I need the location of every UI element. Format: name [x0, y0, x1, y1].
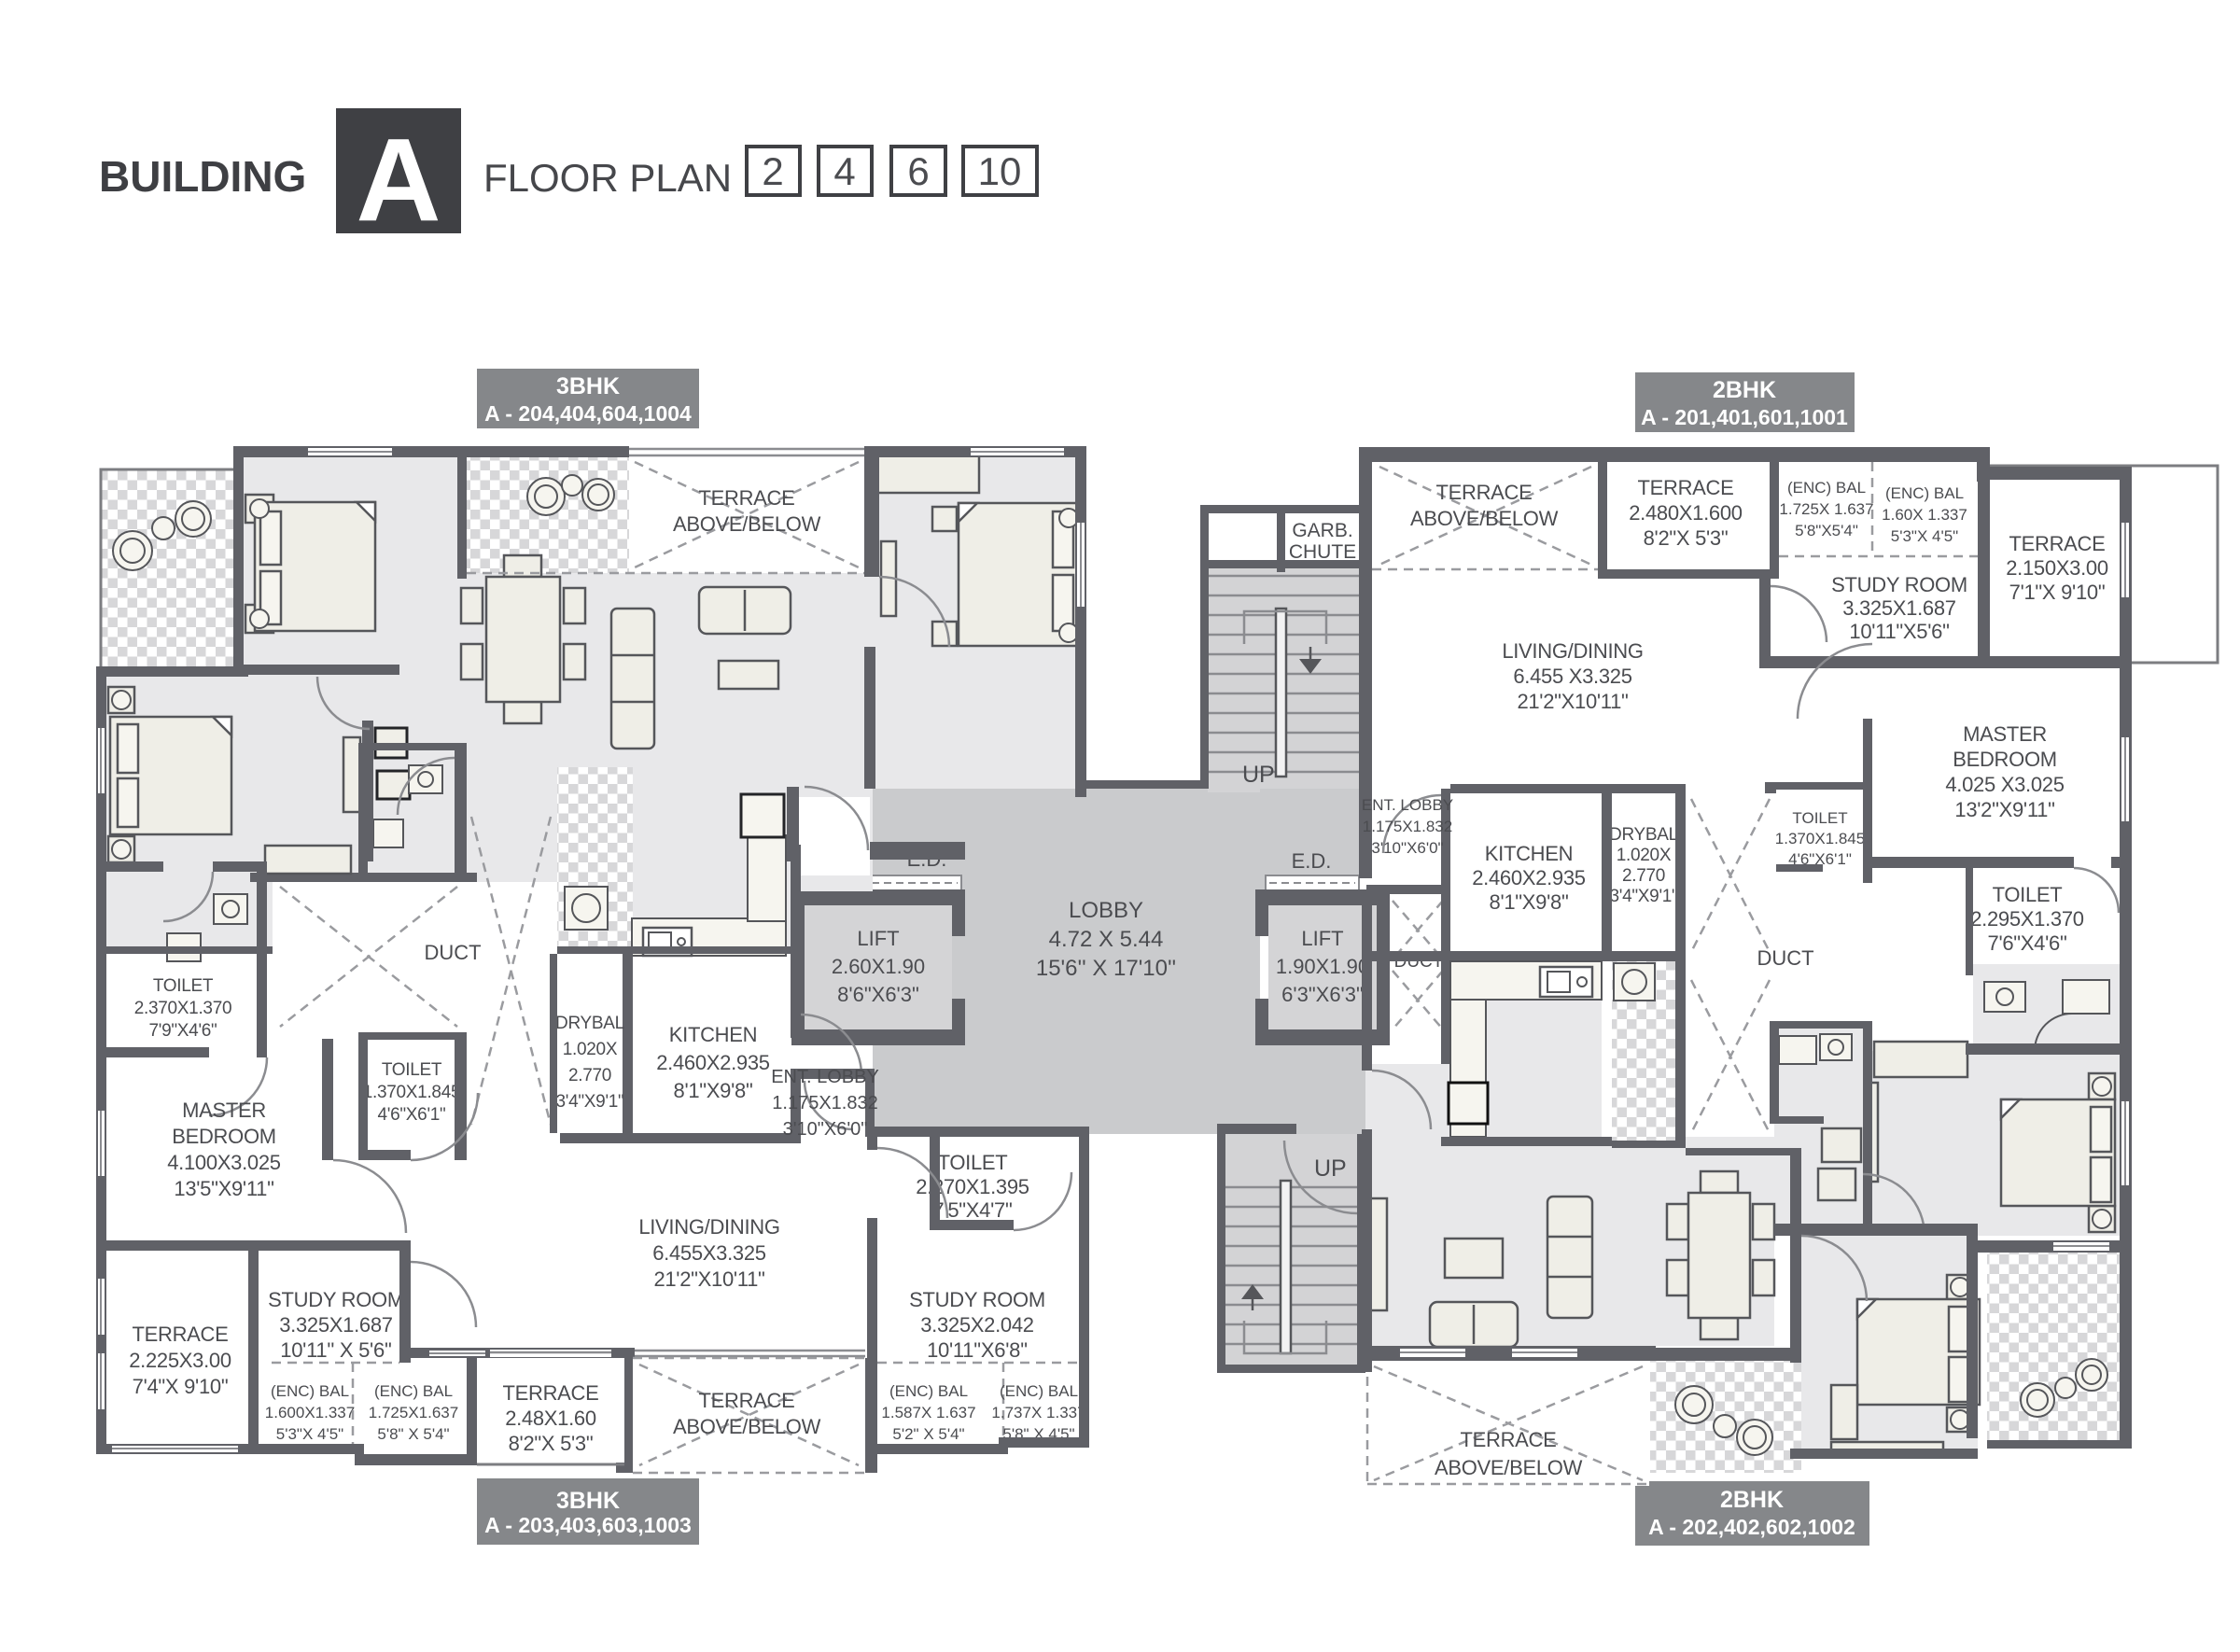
svg-text:A - 203,403,603,1003: A - 203,403,603,1003 — [484, 1513, 692, 1537]
svg-text:DUCT: DUCT — [424, 941, 481, 964]
svg-text:2.770: 2.770 — [568, 1066, 611, 1085]
svg-text:1.737X 1.337: 1.737X 1.337 — [991, 1404, 1085, 1421]
svg-text:13'5"X9'11": 13'5"X9'11" — [174, 1177, 273, 1200]
svg-text:(ENC) BAL: (ENC) BAL — [374, 1382, 453, 1400]
svg-text:2.150X3.00: 2.150X3.00 — [2006, 556, 2108, 580]
svg-text:5'2" X 5'4": 5'2" X 5'4" — [892, 1425, 964, 1443]
svg-text:1.175X1.832: 1.175X1.832 — [1363, 818, 1452, 835]
svg-text:7'9"X4'6": 7'9"X4'6" — [149, 1021, 217, 1041]
svg-text:21'2"X10'11": 21'2"X10'11" — [653, 1267, 764, 1291]
svg-text:4.025 X3.025: 4.025 X3.025 — [1945, 773, 2064, 796]
svg-text:1.020X: 1.020X — [563, 1040, 618, 1059]
svg-text:2.225X3.00: 2.225X3.00 — [129, 1349, 231, 1372]
svg-text:A: A — [357, 114, 441, 245]
svg-text:2.48X1.60: 2.48X1.60 — [505, 1407, 596, 1430]
svg-text:TOILET: TOILET — [1993, 883, 2063, 906]
svg-text:5'8" X 5'4": 5'8" X 5'4" — [377, 1425, 449, 1443]
svg-text:8'2"X 5'3": 8'2"X 5'3" — [1644, 526, 1729, 550]
svg-text:7'6"X4'6": 7'6"X4'6" — [1988, 931, 2067, 955]
svg-text:TOILET: TOILET — [938, 1151, 1008, 1174]
svg-text:1.725X1.637: 1.725X1.637 — [369, 1404, 458, 1421]
svg-text:KITCHEN: KITCHEN — [1485, 842, 1573, 865]
svg-text:DRYBAL: DRYBAL — [1609, 825, 1678, 845]
svg-text:BUILDING: BUILDING — [99, 152, 306, 201]
svg-text:3.325X2.042: 3.325X2.042 — [920, 1313, 1034, 1337]
svg-text:4.100X3.025: 4.100X3.025 — [167, 1151, 281, 1174]
svg-text:8'1"X9'8": 8'1"X9'8" — [1490, 890, 1569, 914]
svg-text:6.455X3.325: 6.455X3.325 — [652, 1241, 766, 1265]
svg-text:ABOVE/BELOW: ABOVE/BELOW — [673, 512, 821, 536]
svg-text:TERRACE: TERRACE — [1637, 476, 1733, 499]
svg-text:1.020X: 1.020X — [1617, 846, 1672, 865]
svg-text:8'2"X 5'3": 8'2"X 5'3" — [509, 1432, 594, 1455]
svg-text:2BHK: 2BHK — [1720, 1487, 1784, 1513]
svg-text:LIVING/DINING: LIVING/DINING — [1502, 639, 1643, 663]
svg-text:A - 202,402,602,1002: A - 202,402,602,1002 — [1648, 1515, 1855, 1539]
svg-text:DRYBAL: DRYBAL — [555, 1014, 624, 1033]
svg-text:8'1"X9'8": 8'1"X9'8" — [674, 1079, 753, 1102]
svg-text:LOBBY: LOBBY — [1069, 898, 1143, 923]
svg-text:21'2"X10'11": 21'2"X10'11" — [1517, 690, 1628, 713]
svg-text:1.370X1.845: 1.370X1.845 — [1775, 830, 1865, 847]
svg-text:2.295X1.370: 2.295X1.370 — [1970, 907, 2084, 931]
svg-text:STUDY ROOM: STUDY ROOM — [1831, 573, 1967, 596]
svg-text:1.370X1.845: 1.370X1.845 — [363, 1083, 460, 1102]
svg-text:A - 201,401,601,1001: A - 201,401,601,1001 — [1641, 405, 1848, 429]
svg-text:(ENC) BAL: (ENC) BAL — [1000, 1382, 1078, 1400]
svg-text:1.587X 1.637: 1.587X 1.637 — [881, 1404, 975, 1421]
svg-text:ABOVE/BELOW: ABOVE/BELOW — [1410, 507, 1559, 530]
svg-text:4: 4 — [833, 149, 855, 193]
svg-text:(ENC) BAL: (ENC) BAL — [889, 1382, 968, 1400]
svg-text:10'11'' X 5'6'': 10'11'' X 5'6'' — [280, 1338, 391, 1362]
svg-text:TERRACE: TERRACE — [698, 1389, 794, 1412]
svg-text:2.460X2.935: 2.460X2.935 — [656, 1051, 770, 1074]
svg-text:CHUTE: CHUTE — [1289, 541, 1356, 563]
svg-text:8'6"X6'3": 8'6"X6'3" — [837, 983, 919, 1006]
svg-text:GARB.: GARB. — [1292, 520, 1352, 541]
svg-text:UP: UP — [1242, 762, 1275, 788]
svg-text:TERRACE: TERRACE — [2009, 532, 2105, 555]
svg-text:TERRACE: TERRACE — [698, 486, 794, 510]
svg-text:3'4"X9'1": 3'4"X9'1" — [556, 1092, 624, 1112]
svg-text:(ENC) BAL: (ENC) BAL — [1787, 479, 1866, 497]
svg-text:5'3"X 4'5": 5'3"X 4'5" — [276, 1425, 343, 1443]
svg-text:TOILET: TOILET — [382, 1060, 442, 1080]
svg-text:(ENC) BAL: (ENC) BAL — [1885, 484, 1964, 502]
svg-text:10'11''X6'8'': 10'11''X6'8'' — [927, 1338, 1028, 1362]
svg-text:1.60X 1.337: 1.60X 1.337 — [1882, 506, 1967, 524]
svg-text:1.600X1.337: 1.600X1.337 — [265, 1404, 355, 1421]
svg-text:10'11"X5'6": 10'11"X5'6" — [1849, 620, 1949, 643]
svg-text:ABOVE/BELOW: ABOVE/BELOW — [1435, 1456, 1583, 1479]
svg-text:6'3"X6'3": 6'3"X6'3" — [1281, 983, 1364, 1006]
svg-text:15'6'' X 17'10'': 15'6'' X 17'10'' — [1036, 956, 1176, 981]
svg-text:E.D.: E.D. — [1292, 849, 1332, 873]
svg-text:10: 10 — [978, 149, 1022, 193]
svg-text:13'2"X9'11": 13'2"X9'11" — [1954, 798, 2054, 821]
svg-text:5'8"X5'4": 5'8"X5'4" — [1795, 522, 1858, 539]
svg-text:TERRACE: TERRACE — [1435, 481, 1532, 504]
svg-text:5'3"X 4'5": 5'3"X 4'5" — [1891, 527, 1958, 545]
svg-text:2.460X2.935: 2.460X2.935 — [1472, 866, 1586, 889]
svg-text:LIFT: LIFT — [857, 927, 899, 950]
svg-text:KITCHEN: KITCHEN — [669, 1023, 757, 1046]
svg-text:1.725X 1.637: 1.725X 1.637 — [1779, 500, 1873, 518]
svg-text:MASTER: MASTER — [182, 1099, 266, 1122]
svg-text:7'4"X 9'10": 7'4"X 9'10" — [133, 1375, 229, 1398]
svg-text:2BHK: 2BHK — [1713, 377, 1776, 403]
svg-text:LIFT: LIFT — [1301, 927, 1343, 950]
svg-text:UP: UP — [1314, 1155, 1347, 1182]
svg-text:BEDROOM: BEDROOM — [1953, 748, 2057, 771]
svg-text:7'1"X 9'10": 7'1"X 9'10" — [2009, 581, 2106, 604]
svg-text:3BHK: 3BHK — [556, 1488, 620, 1514]
svg-text:6: 6 — [907, 149, 929, 193]
svg-text:TERRACE: TERRACE — [132, 1323, 228, 1346]
svg-text:TERRACE: TERRACE — [1460, 1428, 1556, 1451]
svg-text:(ENC) BAL: (ENC) BAL — [271, 1382, 349, 1400]
svg-text:3'10"X6'0": 3'10"X6'0" — [1371, 839, 1443, 857]
svg-text:ENT. LOBBY: ENT. LOBBY — [1362, 796, 1453, 814]
svg-text:LIVING/DINING: LIVING/DINING — [638, 1215, 779, 1239]
svg-text:3.325X1.687: 3.325X1.687 — [1842, 596, 1956, 620]
svg-text:2.480X1.600: 2.480X1.600 — [1629, 501, 1743, 525]
svg-text:2.770: 2.770 — [1622, 866, 1665, 886]
svg-text:DUCT: DUCT — [1757, 946, 1813, 970]
svg-text:STUDY ROOM: STUDY ROOM — [909, 1288, 1045, 1311]
svg-text:3.325X1.687: 3.325X1.687 — [279, 1313, 393, 1337]
svg-text:2: 2 — [762, 149, 783, 193]
svg-text:2.370X1.370: 2.370X1.370 — [134, 999, 231, 1018]
svg-text:3'10"X6'0": 3'10"X6'0" — [783, 1119, 868, 1140]
svg-text:ENT. LOBBY: ENT. LOBBY — [771, 1067, 879, 1087]
svg-text:TERRACE: TERRACE — [502, 1381, 598, 1405]
svg-text:FLOOR PLAN: FLOOR PLAN — [483, 156, 732, 200]
svg-text:STUDY ROOM: STUDY ROOM — [268, 1288, 404, 1311]
svg-text:A - 204,404,604,1004: A - 204,404,604,1004 — [484, 401, 692, 426]
svg-text:1.90X1.90: 1.90X1.90 — [1276, 955, 1369, 978]
svg-text:3BHK: 3BHK — [556, 373, 620, 399]
svg-text:ABOVE/BELOW: ABOVE/BELOW — [673, 1415, 821, 1438]
svg-text:3'4"X9'1": 3'4"X9'1" — [1610, 887, 1678, 906]
svg-text:1.175X1.832: 1.175X1.832 — [772, 1093, 877, 1113]
svg-text:MASTER: MASTER — [1963, 722, 2047, 746]
svg-text:4.72 X 5.44: 4.72 X 5.44 — [1049, 927, 1164, 952]
svg-text:6.455 X3.325: 6.455 X3.325 — [1513, 665, 1631, 688]
svg-text:TOILET: TOILET — [1792, 809, 1847, 827]
svg-text:TOILET: TOILET — [153, 976, 214, 996]
svg-text:4'6"X6'1": 4'6"X6'1" — [378, 1105, 446, 1125]
svg-text:2.60X1.90: 2.60X1.90 — [832, 955, 925, 978]
svg-text:BEDROOM: BEDROOM — [172, 1125, 276, 1148]
